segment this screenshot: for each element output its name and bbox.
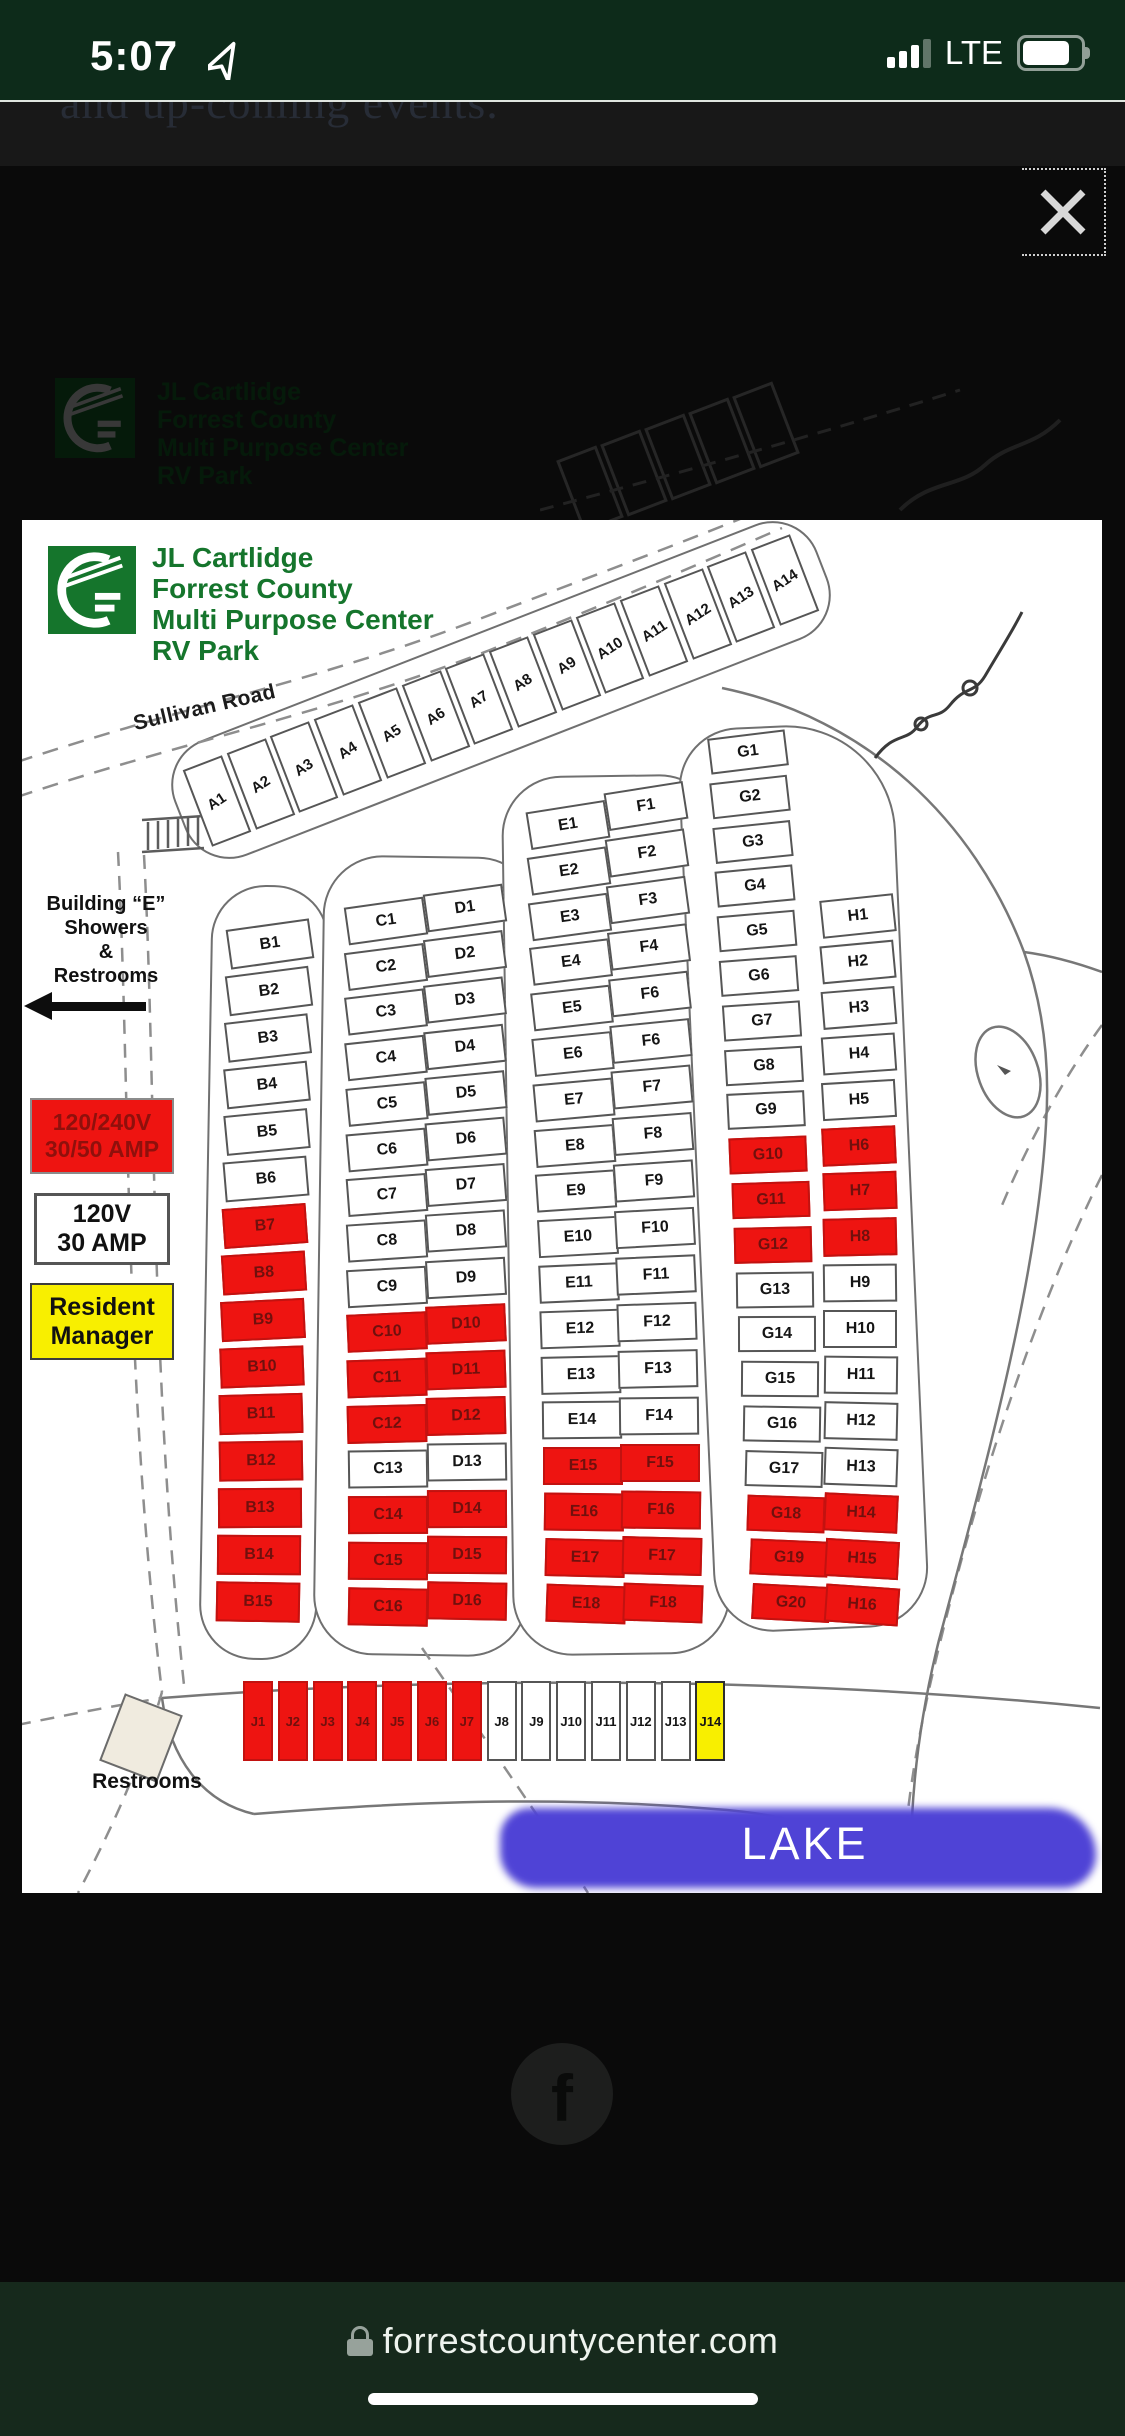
site-B8: B8 [221,1250,307,1295]
site-H15: H15 [824,1537,900,1579]
site-G16: G16 [743,1405,822,1442]
site-G4: G4 [714,865,795,908]
site-D9: D9 [425,1256,507,1298]
site-B3: B3 [224,1013,312,1063]
site-B7: B7 [222,1203,309,1249]
site-J14: J14 [695,1681,725,1761]
site-D2: D2 [423,930,507,978]
dimmed-park-title: JL CartlidgeForrest County Multi Purpose… [157,378,408,490]
site-F15: F15 [620,1444,700,1482]
site-J5: J5 [382,1681,412,1761]
site-H2: H2 [820,940,897,985]
site-G5: G5 [717,910,798,953]
site-H3: H3 [820,986,897,1030]
site-C1: C1 [344,897,429,946]
site-G3: G3 [712,820,793,864]
site-G11: G11 [731,1181,810,1219]
site-B12: B12 [218,1440,303,1481]
site-J10: J10 [556,1681,586,1761]
location-arrow-icon [208,40,242,80]
site-B10: B10 [220,1345,305,1388]
browser-bottom-bar[interactable]: forrestcountycenter.com [0,2282,1125,2436]
legend-premium: 120/240V30/50 AMP [30,1098,174,1174]
site-E12: E12 [539,1308,620,1349]
site-B14: B14 [217,1535,301,1576]
site-B1: B1 [226,918,315,969]
site-G18: G18 [747,1494,826,1533]
site-G10: G10 [729,1136,808,1175]
site-C9: C9 [346,1265,428,1307]
site-H6: H6 [821,1125,897,1166]
site-G15: G15 [741,1361,819,1398]
home-indicator[interactable] [368,2393,758,2405]
site-J3: J3 [313,1681,343,1761]
site-H10: H10 [823,1310,897,1348]
site-D14: D14 [427,1489,507,1527]
site-G7: G7 [721,1000,801,1041]
site-B5: B5 [223,1108,310,1156]
site-J7: J7 [452,1681,482,1761]
site-H8: H8 [822,1217,897,1257]
network-label: LTE [945,34,1003,72]
site-D4: D4 [424,1023,508,1069]
left-arrow-icon [50,1002,146,1011]
site-H12: H12 [823,1401,898,1441]
lock-icon [347,2326,373,2356]
site-C5: C5 [345,1081,428,1127]
page-separator [0,100,1125,102]
site-C3: C3 [344,989,428,1036]
site-D5: D5 [424,1070,507,1116]
restrooms-label: Restrooms [52,1770,242,1794]
site-E11: E11 [538,1262,620,1303]
site-B4: B4 [224,1061,312,1110]
left-arrow-head [24,992,52,1020]
close-button[interactable] [1022,168,1106,256]
site-E15: E15 [543,1447,623,1485]
site-E1: E1 [526,800,611,850]
site-B13: B13 [218,1488,302,1528]
site-E16: E16 [544,1493,624,1532]
site-C4: C4 [345,1035,429,1081]
site-D13: D13 [426,1443,507,1482]
site-C14: C14 [348,1496,428,1534]
site-F10: F10 [614,1207,696,1249]
site-F1: F1 [604,781,689,831]
site-D7: D7 [424,1163,507,1207]
site-F16: F16 [621,1490,701,1529]
site-J6: J6 [417,1681,447,1761]
park-title: JL CartlidgeForrest County Multi Purpose… [152,542,434,666]
legend-manager: ResidentManager [30,1283,174,1360]
site-D16: D16 [427,1581,508,1620]
site-J11: J11 [591,1681,621,1761]
site-C15: C15 [348,1542,428,1581]
site-E10: E10 [537,1216,619,1258]
site-G8: G8 [724,1045,804,1085]
site-H13: H13 [824,1447,899,1488]
site-F11: F11 [615,1254,697,1295]
signal-icon [887,38,931,68]
site-E18: E18 [545,1583,626,1624]
site-E14: E14 [542,1401,622,1440]
battery-icon [1017,35,1085,71]
site-F8: F8 [612,1112,695,1156]
site-D10: D10 [425,1303,507,1345]
site-D8: D8 [425,1210,507,1253]
site-F14: F14 [619,1396,699,1435]
site-F7: F7 [610,1065,693,1110]
site-D3: D3 [423,977,507,1024]
iphone-screen: and up-coming events. JL CartlidgeForres… [0,0,1125,2436]
site-H14: H14 [824,1492,900,1533]
site-C6: C6 [345,1127,428,1172]
site-J13: J13 [661,1681,691,1761]
site-G19: G19 [749,1539,828,1578]
site-C8: C8 [346,1219,428,1262]
site-F2: F2 [605,828,690,877]
dimmed-park-logo [55,378,135,458]
site-H5: H5 [821,1078,897,1120]
site-D6: D6 [424,1117,507,1162]
site-H7: H7 [822,1171,897,1212]
site-F3: F3 [606,876,690,924]
site-J12: J12 [626,1681,656,1761]
site-F17: F17 [622,1536,703,1576]
site-C12: C12 [347,1404,428,1444]
site-E2: E2 [527,846,612,895]
site-E5: E5 [530,985,614,1032]
status-bar: 5:07 LTE [0,0,1125,100]
site-G20: G20 [751,1583,831,1623]
site-E3: E3 [528,892,612,940]
site-E7: E7 [533,1077,616,1122]
site-C10: C10 [346,1312,428,1354]
site-D1: D1 [423,884,508,933]
site-B2: B2 [225,966,313,1016]
site-D12: D12 [426,1396,507,1436]
site-G9: G9 [726,1091,806,1131]
site-G1: G1 [707,729,789,774]
site-H1: H1 [819,893,897,939]
site-G13: G13 [736,1271,814,1308]
site-B11: B11 [219,1393,304,1435]
park-logo [48,545,136,635]
clock: 5:07 [90,32,178,80]
site-G12: G12 [734,1226,813,1264]
close-icon [1035,184,1091,240]
site-E17: E17 [545,1538,626,1578]
site-C16: C16 [348,1587,429,1626]
site-B6: B6 [222,1156,309,1203]
site-E13: E13 [540,1355,621,1395]
lake-label: LAKE [705,1818,905,1870]
site-G14: G14 [738,1316,816,1352]
site-C13: C13 [347,1450,428,1489]
site-G6: G6 [719,955,800,997]
site-F4: F4 [607,923,691,971]
site-H9: H9 [823,1264,897,1303]
rv-park-map: LAKE A1A2A3A4A5A6A7A8A9A10A11A12A13A14B1… [22,520,1102,1893]
site-E8: E8 [534,1124,617,1168]
site-J9: J9 [521,1681,551,1761]
site-G17: G17 [745,1450,824,1488]
site-E6: E6 [532,1031,615,1077]
address-bar[interactable]: forrestcountycenter.com [0,2320,1125,2362]
facebook-icon: f [551,2060,573,2136]
facebook-button[interactable]: f [511,2043,613,2145]
site-F9: F9 [613,1160,695,1203]
site-G2: G2 [709,775,791,820]
site-F6: F6 [608,970,692,1017]
site-J1: J1 [243,1681,273,1761]
site-C11: C11 [347,1358,428,1399]
site-J4: J4 [347,1681,377,1761]
site-H4: H4 [821,1032,897,1075]
site-J8: J8 [487,1681,517,1761]
site-url: forrestcountycenter.com [383,2320,779,2362]
site-E4: E4 [529,939,613,987]
site-B9: B9 [220,1298,306,1342]
dimmed-map-fragment [540,360,1100,540]
site-C2: C2 [344,943,428,991]
site-D15: D15 [427,1536,507,1575]
site-B15: B15 [216,1581,301,1622]
site-H16: H16 [824,1583,900,1626]
site-H11: H11 [823,1356,897,1395]
dimmed-page-header: JL CartlidgeForrest County Multi Purpose… [55,378,408,490]
site-F6: F6 [609,1018,692,1064]
building-e-note: Building “E”Showers &Restrooms [22,892,190,988]
site-F12: F12 [616,1302,697,1343]
site-F13: F13 [618,1349,699,1389]
site-E9: E9 [535,1170,617,1213]
site-J2: J2 [278,1681,308,1761]
sites-layer: A1A2A3A4A5A6A7A8A9A10A11A12A13A14B1B2B3B… [22,520,1102,1893]
legend-standard: 120V30 AMP [34,1193,170,1265]
site-C7: C7 [345,1173,428,1217]
site-D11: D11 [426,1350,507,1391]
site-F18: F18 [622,1583,703,1624]
